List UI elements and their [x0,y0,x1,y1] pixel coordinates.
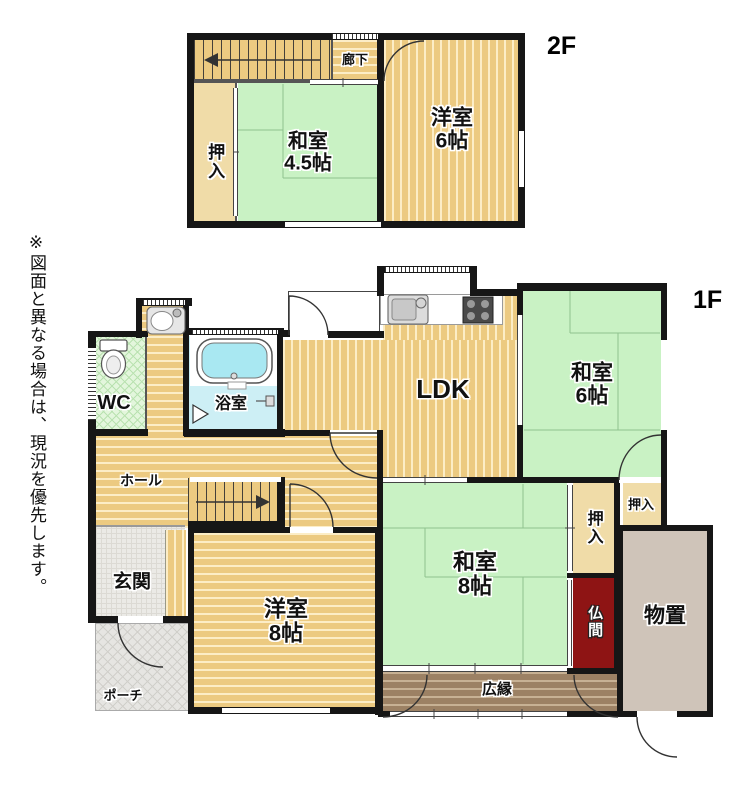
sliding-door [517,315,523,425]
room-label-washitsu-4-5: 和室 4.5帖 [284,131,332,174]
wall [517,289,523,315]
room-label-washitsu-6: 和室 6帖 [571,362,613,407]
window [88,348,96,420]
floor-label-2f: 2F [547,32,576,61]
room-label-butsuma: 仏間 [586,605,602,639]
wall [661,430,667,483]
room-label-porch: ポーチ [103,689,142,703]
disclaimer-note: ※図面と異なる場合は、現況を優先します。 [24,233,49,596]
room-label-closet-main: 押入 [584,510,601,546]
wall [277,330,290,337]
wall [707,525,713,717]
room-label-washitsu-8: 和室 8帖 [453,550,497,598]
wall [184,429,285,437]
door-opening [290,527,333,533]
wall [88,429,148,436]
sliding-door [383,665,567,672]
room-label-bath: 浴室 [215,395,247,412]
wall [567,668,620,674]
door-opening [330,430,377,436]
door-opening [619,477,661,483]
room-wc [96,337,145,430]
window [285,222,381,227]
wall [661,283,667,340]
window [519,131,524,187]
window [662,340,667,430]
wall [283,430,330,436]
wall [188,527,290,533]
stair-landing-edge [190,477,281,482]
wall [517,283,667,291]
wall [567,573,620,578]
wall [331,40,333,81]
window [222,708,330,713]
genkan-step [165,530,186,618]
room-label-closet-2f: 押入 [205,143,223,181]
window-band [390,711,567,717]
wall [328,331,384,338]
wall [88,331,148,337]
wall [517,425,523,483]
corridor-washroom [142,304,188,432]
wall [183,300,189,436]
room-label-ldk: LDK [416,375,469,403]
sliding-door [383,477,467,483]
wall [617,525,623,717]
room-label-hiroen: 広縁 [482,682,512,698]
kitchen-counter [380,294,503,325]
window [143,300,185,305]
staircase-1f [188,478,283,521]
floor-label-1f: 1F [693,286,722,315]
wall [96,525,185,527]
entrance-door-opening [118,616,163,623]
floor-plan-page: ※図面と異なる場合は、現況を優先します。 2F 1F 廊下 押入 和室 4.5帖… [0,0,753,800]
staircase-2f [194,40,331,80]
room-label-closet-small: 押入 [628,498,654,512]
room-label-monooki: 物置 [644,606,686,629]
wall [88,430,96,622]
kitchen-bay [384,272,470,294]
room-label-youshitsu-8: 洋室 8帖 [264,597,308,645]
window [192,330,278,334]
back-door-nook [288,291,380,335]
wall [377,39,384,221]
wall [277,330,283,437]
wall [163,616,191,623]
wall [88,616,118,623]
wall [145,337,147,432]
room-label-corridor: 廊下 [342,53,368,67]
wall [187,33,194,228]
wall [617,525,713,531]
sliding-door [310,79,378,85]
room-label-youshitsu-6: 洋室 6帖 [431,107,473,152]
window [385,267,469,272]
room-label-wc: WC [97,393,130,415]
sliding-door [567,485,573,571]
wall [277,477,285,528]
sliding-door [567,580,572,666]
bathtub-deck [190,336,278,386]
room-label-hall: ホール [120,473,162,488]
room-label-genkan: 玄関 [113,573,151,594]
storage-door-opening [637,711,677,717]
sliding-door [233,88,238,216]
wall [661,477,667,531]
wall [475,289,523,296]
wall [375,527,383,715]
window [332,34,378,39]
